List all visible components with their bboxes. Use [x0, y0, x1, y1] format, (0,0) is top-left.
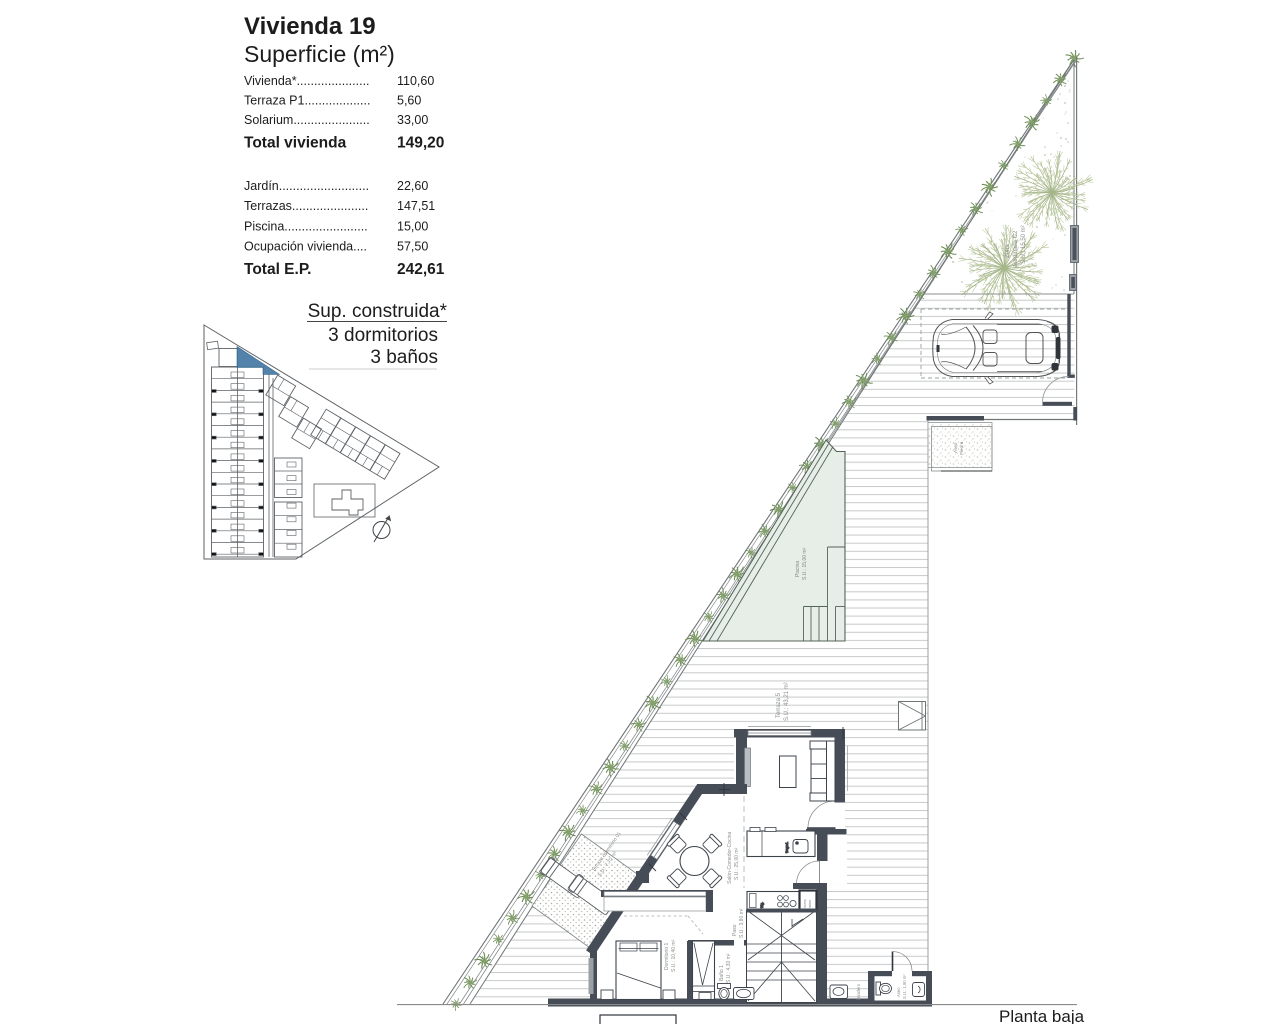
svg-text:fregad.: fregad.	[785, 842, 789, 853]
svg-text:Terraza P1...................: Terraza P1...................	[244, 94, 370, 108]
svg-text:5,60: 5,60	[397, 94, 421, 108]
svg-text:Vivienda 19: Vivienda 19	[244, 13, 376, 40]
svg-text:Aseo: Aseo	[896, 987, 901, 997]
svg-text:Ocupación vivienda....: Ocupación vivienda....	[244, 240, 367, 254]
svg-text:3 dormitorios: 3 dormitorios	[328, 325, 438, 346]
svg-text:S.U.: 15,50 m²: S.U.: 15,50 m²	[1021, 225, 1027, 264]
svg-text:Dormitorio 1: Dormitorio 1	[664, 943, 670, 970]
svg-text:242,61: 242,61	[397, 261, 445, 278]
svg-text:110,60: 110,60	[397, 74, 434, 88]
svg-text:149,20: 149,20	[397, 135, 444, 152]
svg-text:frig.: frig.	[760, 902, 764, 908]
svg-text:Piscina: Piscina	[795, 561, 801, 577]
svg-text:lavadero: lavadero	[856, 983, 861, 1000]
svg-text:Total vivienda: Total vivienda	[244, 135, 347, 152]
svg-text:Terraza 5: Terraza 5	[776, 692, 782, 718]
svg-text:Aseo: Aseo	[953, 442, 958, 453]
svg-text:Terrazas......................: Terrazas......................	[244, 199, 368, 213]
svg-text:micro: micro	[808, 900, 812, 908]
svg-text:S.U.: 4,30 m²: S.U.: 4,30 m²	[726, 953, 732, 983]
svg-text:Jardín........................: Jardín..........................	[244, 179, 369, 193]
svg-text:horno: horno	[803, 899, 807, 908]
svg-text:3 baños: 3 baños	[370, 347, 438, 368]
svg-text:147,51: 147,51	[397, 199, 435, 213]
svg-text:S.U.: 43,21 m²: S.U.: 43,21 m²	[784, 682, 790, 721]
svg-text:33,00: 33,00	[397, 113, 428, 127]
svg-text:57,50: 57,50	[397, 240, 428, 254]
svg-text:S.U.: 3,80 m²: S.U.: 3,80 m²	[739, 908, 745, 938]
svg-text:Piedra: Piedra	[959, 441, 964, 455]
svg-text:Sup. construida*: Sup. construida*	[308, 301, 448, 322]
svg-text:Vivienda*.....................: Vivienda*.....................	[244, 74, 370, 88]
svg-text:Baño 1: Baño 1	[719, 965, 725, 981]
svg-text:S.U.: 25,00 m²: S.U.: 25,00 m²	[734, 847, 740, 880]
svg-text:15,00: 15,00	[397, 220, 428, 234]
svg-text:Solarium......................: Solarium......................	[244, 113, 370, 127]
svg-text:ajardinada C2: ajardinada C2	[1013, 230, 1019, 268]
svg-text:Total E.P.: Total E.P.	[244, 261, 311, 278]
svg-text:Zona: Zona	[1005, 244, 1011, 258]
svg-text:Salón-Comedor-Cocina: Salón-Comedor-Cocina	[727, 832, 733, 884]
svg-text:S.U.: 10,40 m²: S.U.: 10,40 m²	[671, 939, 677, 972]
svg-text:Planta baja: Planta baja	[999, 1007, 1085, 1024]
svg-text:Paso: Paso	[732, 924, 738, 936]
svg-text:22,60: 22,60	[397, 179, 428, 193]
svg-text:S.U.: 1,90 m²: S.U.: 1,90 m²	[902, 974, 907, 999]
svg-text:Piscina.......................: Piscina........................	[244, 220, 368, 234]
svg-text:S.U.: 15,00 m²: S.U.: 15,00 m²	[802, 547, 808, 580]
svg-text:Superficie (m²): Superficie (m²)	[244, 41, 395, 67]
